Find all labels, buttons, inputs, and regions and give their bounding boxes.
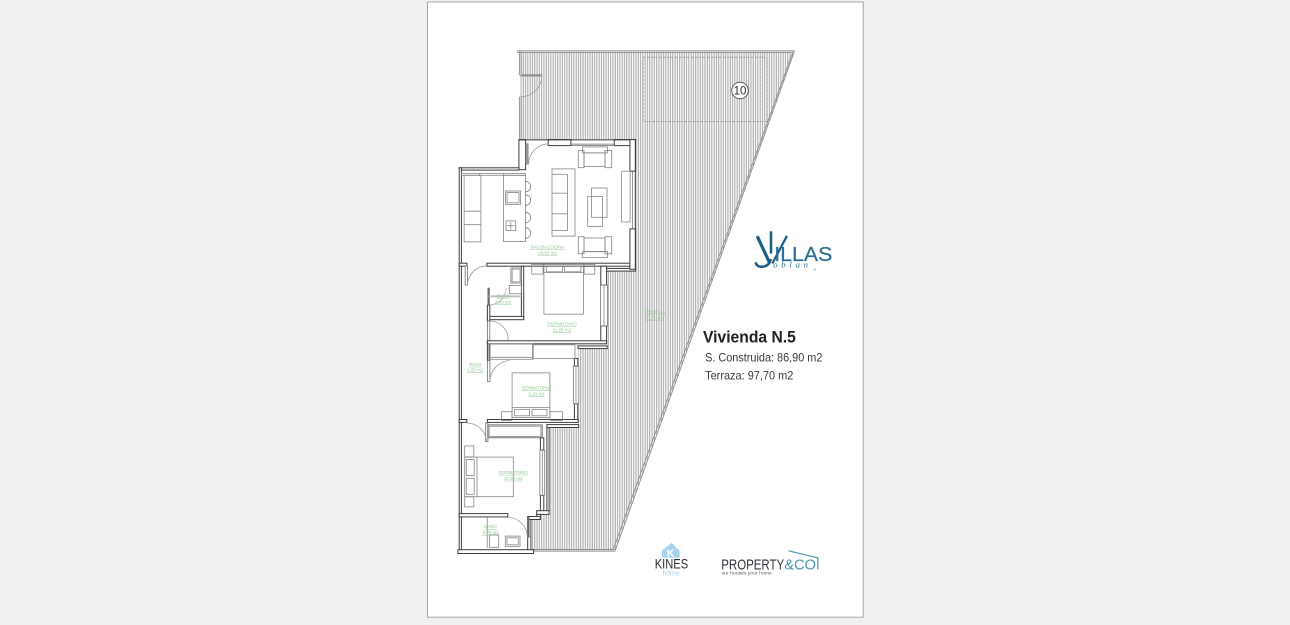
svg-text:DORMITORIO: DORMITORIO: [499, 470, 529, 475]
svg-text:&CO: &CO: [784, 556, 816, 573]
svg-text:28,50 m2: 28,50 m2: [538, 251, 557, 256]
svg-text:our houses your home: our houses your home: [722, 570, 773, 575]
svg-text:11,95 m2: 11,95 m2: [553, 328, 572, 333]
svg-text:97,70 m2: 97,70 m2: [645, 316, 664, 321]
svg-text:10: 10: [734, 86, 747, 98]
svg-text:10,95 m2: 10,95 m2: [504, 476, 523, 481]
svg-text:BAÑO: BAÑO: [497, 292, 510, 298]
svg-text:oblan: oblan: [773, 260, 812, 270]
svg-text:home: home: [663, 570, 680, 577]
svg-text:Terraza: 97,70 m2: Terraza: 97,70 m2: [705, 369, 793, 383]
svg-text:PASO: PASO: [469, 362, 482, 367]
svg-text:KINES: KINES: [655, 556, 689, 572]
svg-text:3,80 m2: 3,80 m2: [482, 530, 499, 535]
svg-text:BAÑO: BAÑO: [484, 523, 497, 529]
svg-text:TERRAZA: TERRAZA: [644, 310, 665, 315]
svg-text:9,20 m2: 9,20 m2: [528, 391, 545, 396]
svg-text:DORMITORIO: DORMITORIO: [522, 385, 552, 390]
svg-text:SALON.COCINA: SALON.COCINA: [530, 245, 564, 250]
svg-text:Vivienda N.5: Vivienda N.5: [703, 328, 796, 346]
svg-text:3,20 m2: 3,20 m2: [495, 299, 512, 304]
svg-text:DORMITORIO: DORMITORIO: [547, 322, 577, 327]
svg-text:2,65 m2: 2,65 m2: [467, 368, 484, 373]
svg-text:S. Construida: 86,90 m2: S. Construida: 86,90 m2: [705, 351, 822, 365]
